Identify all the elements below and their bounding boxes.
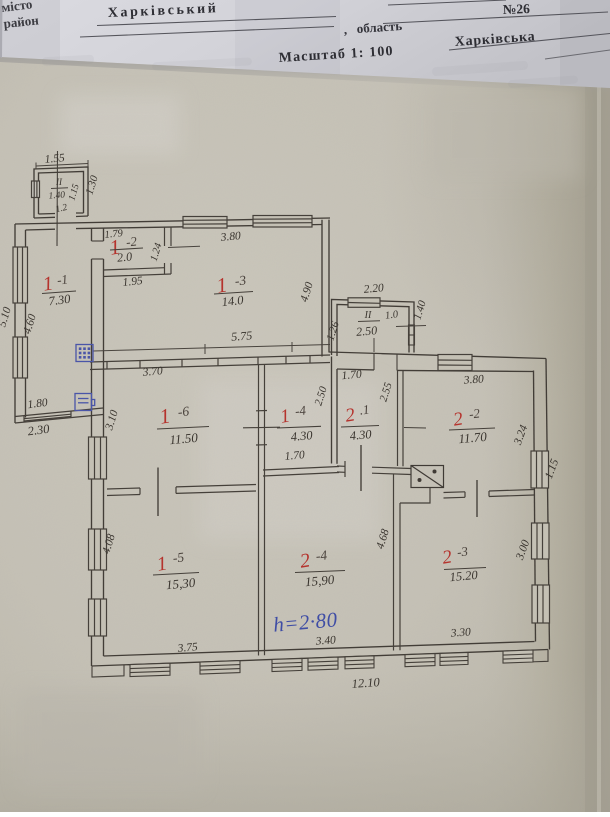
svg-text:2.0: 2.0 (116, 249, 132, 264)
svg-text:1.70: 1.70 (284, 449, 305, 463)
svg-text:15,90: 15,90 (304, 572, 335, 590)
svg-text:-5: -5 (172, 549, 185, 565)
svg-text:1.70: 1.70 (341, 368, 362, 382)
svg-text:3.80: 3.80 (462, 373, 484, 386)
svg-text:15,30: 15,30 (165, 575, 196, 593)
svg-text:4.30: 4.30 (290, 428, 314, 444)
svg-text:14.0: 14.0 (221, 293, 245, 309)
svg-text:15.20: 15.20 (449, 568, 479, 584)
svg-text:3.75: 3.75 (176, 641, 198, 655)
svg-text:-1: -1 (56, 271, 69, 287)
svg-text:№26: №26 (503, 1, 531, 17)
svg-text:11.70: 11.70 (458, 429, 488, 446)
svg-text:-3: -3 (234, 272, 247, 288)
svg-text:1.80: 1.80 (27, 397, 49, 411)
svg-text:-6: -6 (177, 403, 190, 419)
svg-text:2.30: 2.30 (27, 422, 51, 439)
svg-text:12.10: 12.10 (351, 675, 381, 691)
svg-text:1.95: 1.95 (122, 275, 144, 289)
svg-text:II: II (55, 177, 63, 187)
svg-text:7.30: 7.30 (48, 292, 72, 309)
svg-text:5.75: 5.75 (231, 328, 253, 343)
svg-text:.1: .1 (359, 401, 371, 417)
svg-text:1.55: 1.55 (44, 152, 65, 166)
svg-text:11.50: 11.50 (169, 430, 199, 447)
svg-text:2.20: 2.20 (363, 282, 384, 296)
svg-text:-4: -4 (315, 547, 328, 563)
svg-text:4.30: 4.30 (349, 427, 373, 443)
svg-text:3.80: 3.80 (219, 230, 241, 244)
svg-text:2.50: 2.50 (356, 323, 378, 339)
svg-text:1.0: 1.0 (384, 309, 399, 322)
svg-text:3.30: 3.30 (449, 626, 471, 639)
svg-text:1.40: 1.40 (48, 190, 66, 201)
svg-text:II: II (364, 310, 372, 321)
svg-text:3.70: 3.70 (141, 365, 163, 379)
svg-text:3.40: 3.40 (314, 634, 336, 647)
